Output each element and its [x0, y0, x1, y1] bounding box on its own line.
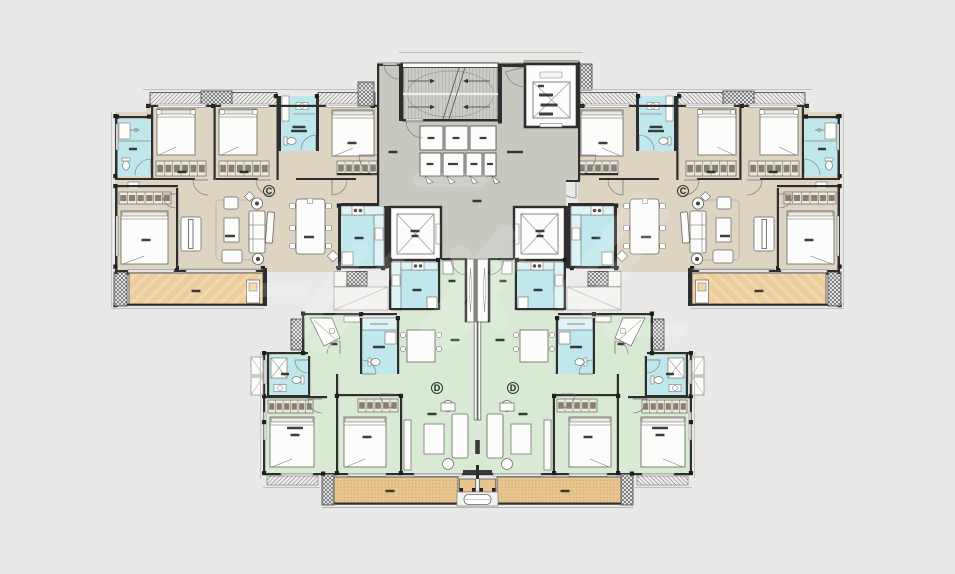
svg-text:D: D [510, 383, 517, 393]
svg-text:D: D [434, 383, 441, 393]
svg-text:C: C [266, 186, 273, 196]
svg-text:C: C [680, 186, 687, 196]
